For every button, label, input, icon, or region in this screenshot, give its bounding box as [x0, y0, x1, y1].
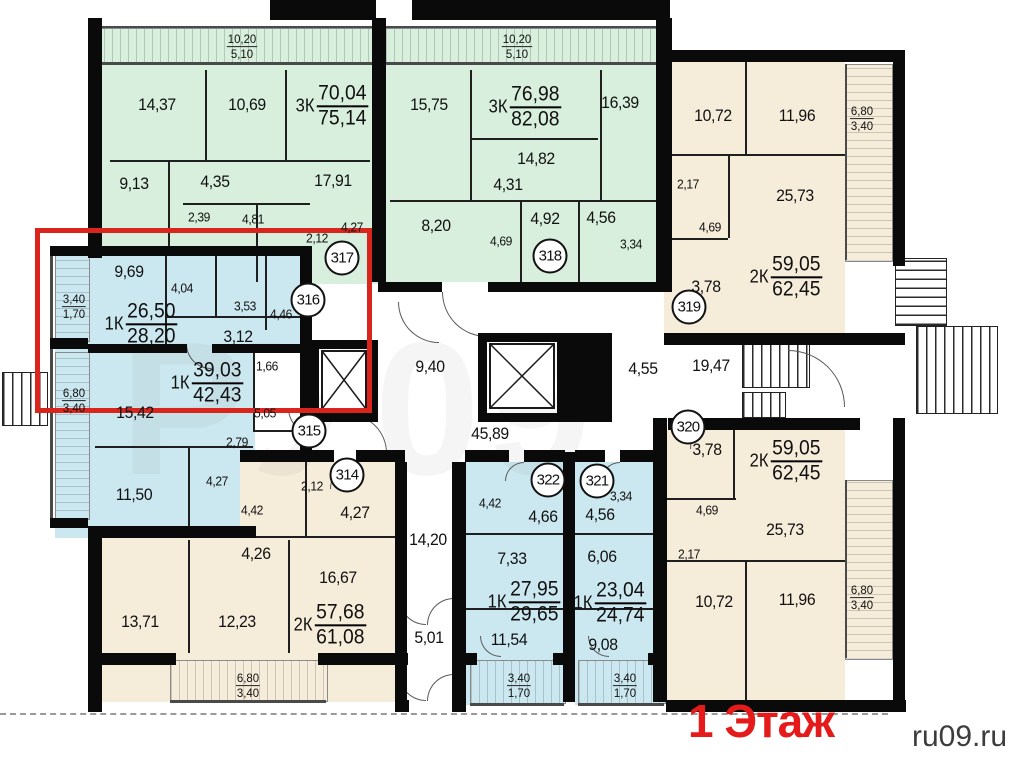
area-top: 59,05: [770, 253, 822, 278]
partition-line: [600, 70, 602, 200]
window-line: [845, 64, 847, 260]
room-area-label: 10,72: [695, 592, 733, 612]
partition-line: [472, 138, 598, 140]
area-top: 76,98: [509, 83, 561, 108]
room-area-label: 4,04: [171, 281, 193, 296]
area-bottom: 62,45: [770, 278, 822, 301]
room-area-label: 4,55: [628, 359, 657, 379]
room-area-label: 4,27: [206, 474, 228, 489]
apartment-type: 1К: [105, 314, 124, 335]
apartment-area-label: 1К23,0424,74: [574, 579, 647, 626]
apartment-area-label: 2К59,0562,45: [750, 253, 823, 300]
partition-line: [733, 430, 735, 498]
wall: [524, 450, 565, 462]
apartment-number-badge: 314: [330, 458, 365, 493]
area-bottom: 42,43: [191, 384, 243, 407]
partition-line: [465, 533, 563, 535]
room-area-label: 2,12: [306, 231, 328, 246]
room-area-label: 9,08: [588, 635, 617, 655]
room-area-label: 14,37: [138, 95, 176, 115]
partition-line: [575, 533, 663, 535]
room-area-label: 3,78: [692, 440, 721, 460]
area-top: 59,05: [770, 437, 822, 462]
partition-line: [285, 70, 287, 160]
apartment-area-label: 1К26,5028,20: [105, 300, 178, 347]
apartment-type: 2К: [294, 615, 313, 636]
dimension-label: 6,803,40: [62, 386, 86, 416]
dim-top: 6,80: [236, 671, 260, 686]
room-area-label: 9,40: [415, 357, 444, 377]
room-area-label: 8,20: [421, 216, 450, 236]
wall: [412, 0, 670, 20]
wall: [88, 526, 102, 666]
room-area-label: 4,66: [528, 507, 557, 527]
room-area-label: 4,56: [585, 505, 614, 525]
dimension-label: 3,401,70: [62, 292, 86, 322]
wall: [478, 333, 566, 342]
door-arc: [442, 292, 487, 337]
window-line: [95, 26, 372, 28]
area-bottom: 24,74: [594, 604, 646, 627]
stair-flight: [742, 392, 786, 418]
area-bottom: 75,14: [316, 107, 368, 130]
room-area-label: 4,27: [340, 503, 369, 523]
apartment-area-label: 1К39,0342,43: [171, 359, 244, 406]
area-bottom: 62,45: [770, 462, 822, 485]
wall: [88, 665, 102, 712]
room-area-label: 4,69: [696, 503, 718, 518]
wall: [270, 0, 376, 20]
dim-bottom: 5,10: [227, 48, 257, 62]
room-area-label: 13,71: [121, 612, 159, 632]
room-area-label: 4,31: [493, 175, 522, 195]
balcony-hatch: [845, 480, 893, 660]
apartment-area-label: 2К59,0562,45: [750, 437, 823, 484]
room-area-label: 11,96: [779, 106, 816, 126]
apartment-type: 3К: [296, 96, 315, 117]
room-area-label: 25,73: [766, 520, 804, 540]
room-area-label: 6,06: [587, 547, 616, 567]
wall: [553, 653, 575, 665]
room-area-label: 4,35: [200, 172, 229, 192]
room-area-label: 12,23: [218, 612, 256, 632]
partition-line: [110, 160, 370, 162]
dimension-label: 3,401,70: [613, 671, 637, 701]
dimension-label: 10,205,10: [502, 32, 532, 62]
room-area-label: 3,34: [610, 489, 632, 504]
room-area-label: 11,50: [116, 485, 153, 505]
door-arc: [398, 302, 439, 343]
partition-line: [183, 203, 310, 205]
partition-line: [188, 448, 190, 526]
apartment-number-badge: 320: [671, 410, 706, 445]
room-area-label: 11,96: [779, 590, 816, 610]
room-area-label: 4,81: [242, 212, 264, 227]
room-area-label: 1,66: [256, 359, 278, 374]
apartment-area-label: 3К70,0475,14: [296, 82, 369, 129]
partition-line: [728, 156, 730, 238]
room-area-label: 4,69: [699, 220, 721, 235]
apartment-type: 2К: [750, 451, 769, 472]
floor-plan: РУ09 1 Этаж ru09.ru 14,3710,699,134,3517…: [0, 0, 1024, 771]
room-area-label: 11,54: [491, 630, 528, 650]
room-area-label: 2,17: [677, 177, 699, 192]
area-bottom: 61,08: [314, 626, 366, 649]
room-area-label: 2,17: [678, 547, 700, 562]
apartment-type: 3К: [489, 97, 508, 118]
wall: [664, 50, 905, 62]
wall: [488, 282, 670, 292]
wall: [465, 450, 509, 462]
wall: [478, 413, 566, 422]
area-top: 27,95: [508, 578, 560, 603]
apartment-area-label: 1К27,9529,65: [488, 578, 561, 625]
stair-flight: [916, 326, 998, 414]
wall: [318, 653, 328, 665]
wall: [452, 700, 466, 712]
wall: [372, 18, 386, 282]
partition-line: [745, 62, 747, 154]
window-line: [578, 703, 664, 706]
room-area-label: 9,13: [119, 174, 148, 194]
window-line: [470, 703, 564, 706]
room-area-label: 2,39: [188, 210, 210, 225]
dimension-label: 6,803,40: [236, 671, 260, 701]
apartment-type: 2К: [750, 267, 769, 288]
window-line: [95, 62, 372, 65]
dim-top: 3,40: [613, 671, 637, 686]
wall: [893, 50, 905, 266]
dimension-label: 3,401,70: [507, 671, 531, 701]
room-area-label: 4,27: [341, 220, 363, 235]
partition-line: [666, 238, 728, 240]
dim-bottom: 1,70: [613, 687, 637, 701]
dim-bottom: 3,40: [62, 402, 86, 416]
wall: [50, 518, 88, 528]
partition-line: [288, 540, 290, 653]
wall: [240, 450, 334, 462]
room-area-label: 15,75: [410, 95, 448, 115]
apartment-number-badge: 322: [531, 463, 566, 498]
room-area-label: 14,20: [409, 530, 447, 550]
window-line: [385, 62, 658, 65]
dim-bottom: 3,40: [236, 687, 260, 701]
wall: [326, 653, 408, 665]
apartment-number-badge: 321: [580, 464, 615, 499]
door-arc: [788, 350, 845, 407]
partition-line: [578, 202, 580, 282]
dim-top: 3,40: [507, 671, 531, 686]
partition-line: [666, 498, 736, 500]
area-bottom: 28,20: [125, 325, 177, 348]
room-area-label: 3,34: [620, 237, 642, 252]
room-area-label: 19,47: [692, 356, 730, 376]
door-arc: [427, 598, 454, 625]
wall: [88, 653, 172, 665]
area-top: 70,04: [316, 82, 368, 107]
dimension-label: 6,803,40: [850, 583, 874, 613]
wall: [557, 333, 566, 422]
partition-line: [205, 70, 207, 160]
room-area-label: 4,46: [270, 307, 292, 322]
partition-line: [240, 536, 402, 538]
dim-bottom: 1,70: [62, 308, 86, 322]
wall: [166, 653, 176, 665]
partition-line: [390, 200, 656, 202]
floor-title: 1 Этаж: [688, 694, 834, 748]
wall: [395, 700, 409, 712]
wall: [356, 450, 405, 462]
area-bottom: 29,65: [508, 603, 560, 626]
wall: [478, 333, 487, 422]
apartment-number-badge: 315: [292, 414, 327, 449]
wall: [452, 462, 466, 702]
room-area-label: 25,73: [776, 186, 814, 206]
wall: [566, 333, 612, 422]
dim-bottom: 1,70: [507, 687, 531, 701]
partition-line: [305, 462, 307, 536]
room-area-label: 4,42: [241, 503, 263, 518]
room-area-label: 4,56: [586, 208, 615, 228]
apartment-area-label: 3К76,9882,08: [489, 83, 562, 130]
room-area-label: 45,89: [471, 424, 509, 444]
room-area-label: 4,26: [241, 544, 270, 564]
wall: [664, 333, 905, 345]
apartment-type: 1К: [488, 592, 507, 613]
apartment-type: 1К: [574, 593, 593, 614]
room-area-label: 3,53: [234, 299, 256, 314]
dimension-label: 10,205,10: [227, 32, 257, 62]
dim-top: 6,80: [62, 386, 86, 401]
region-apartment: [240, 462, 402, 538]
wall: [575, 450, 605, 462]
room-area-label: 17,91: [314, 171, 352, 191]
apartment-number-badge: 318: [533, 239, 568, 274]
room-area-label: 2,12: [301, 479, 323, 494]
room-area-label: 5,01: [414, 628, 443, 648]
partition-line: [666, 154, 845, 156]
room-area-label: 16,67: [319, 568, 357, 588]
wall: [88, 18, 102, 258]
area-top: 39,03: [191, 359, 243, 384]
door-arc: [427, 674, 454, 701]
apartment-number-badge: 316: [291, 283, 326, 318]
partition-line: [470, 70, 472, 200]
apartment-area-label: 2К57,6861,08: [294, 601, 367, 648]
dim-bottom: 5,10: [502, 48, 532, 62]
wall: [893, 418, 905, 712]
dim-top: 6,80: [850, 583, 874, 598]
partition-line: [745, 562, 747, 700]
area-top: 26,50: [125, 300, 177, 325]
room-area-label: 15,42: [116, 403, 154, 423]
room-area-label: 4,92: [530, 209, 559, 229]
wall: [378, 282, 442, 292]
room-area-label: 4,69: [490, 234, 512, 249]
wall: [648, 653, 665, 665]
elevator-x-icon: [489, 343, 555, 409]
balcony-hatch: [845, 64, 893, 262]
room-area-label: 10,72: [694, 106, 732, 126]
dim-top: 3,40: [62, 292, 86, 307]
area-bottom: 82,08: [509, 108, 561, 131]
room-area-label: 14,82: [517, 149, 555, 169]
stair-flight: [895, 258, 947, 326]
room-area-label: 16,39: [601, 93, 639, 113]
room-area-label: 5,05: [254, 406, 276, 421]
wall: [620, 450, 655, 462]
apartment-type: 1К: [171, 373, 190, 394]
area-top: 57,68: [314, 601, 366, 626]
dim-bottom: 3,40: [850, 120, 874, 134]
wall: [88, 526, 256, 538]
dim-bottom: 3,40: [850, 599, 874, 613]
wall: [395, 462, 407, 702]
dim-top: 10,20: [227, 32, 257, 47]
dim-top: 6,80: [850, 104, 874, 119]
dimension-label: 6,803,40: [850, 104, 874, 134]
room-area-label: 9,69: [114, 262, 143, 282]
partition-line: [520, 202, 522, 282]
window-line: [385, 26, 658, 28]
area-top: 23,04: [594, 579, 646, 604]
room-area-label: 10,69: [228, 95, 266, 115]
room-area-label: 4,42: [479, 496, 501, 511]
partition-line: [188, 540, 190, 653]
site-watermark: ru09.ru: [912, 720, 1007, 754]
wall: [465, 653, 477, 665]
apartment-number-badge: 317: [325, 241, 360, 276]
room-area-label: 7,33: [497, 549, 526, 569]
apartment-number-badge: 319: [672, 290, 707, 325]
room-area-label: 3,12: [223, 327, 252, 347]
room-area-label: 2,79: [226, 435, 248, 450]
window-line: [845, 480, 847, 658]
dim-top: 10,20: [502, 32, 532, 47]
